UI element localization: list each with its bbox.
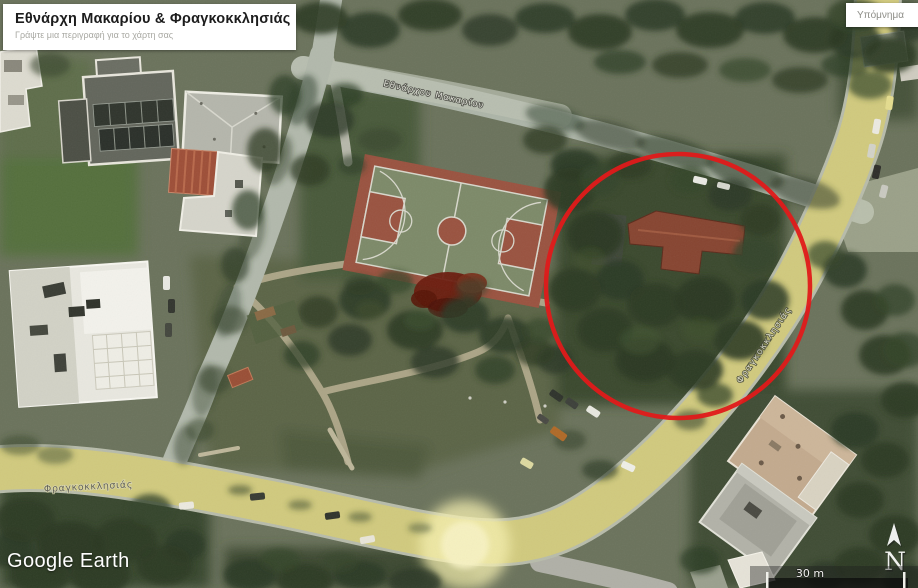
photo-grain — [0, 0, 918, 588]
legend-button[interactable]: Υπόμνημα — [846, 3, 918, 27]
google-earth-watermark: Google Earth — [7, 550, 130, 573]
map-title[interactable]: Εθνάρχη Μακαρίου & Φραγκοκκλησιάς — [15, 11, 284, 27]
scale-label: 30 m — [796, 567, 824, 580]
scale-bar: 30 m — [750, 566, 918, 588]
map-description-placeholder[interactable]: Γράψτε μια περιγραφή για το χάρτη σας — [15, 30, 284, 40]
map-canvas[interactable]: Εθνάρχου Μακαρίου Φραγκοκκλησιάς Φραγκοκ… — [0, 0, 918, 588]
legend-label: Υπόμνημα — [857, 10, 904, 21]
google-earth-screenshot: Εθνάρχου Μακαρίου Φραγκοκκλησιάς Φραγκοκ… — [0, 0, 918, 588]
map-title-card[interactable]: Εθνάρχη Μακαρίου & Φραγκοκκλησιάς Γράψτε… — [3, 4, 296, 50]
